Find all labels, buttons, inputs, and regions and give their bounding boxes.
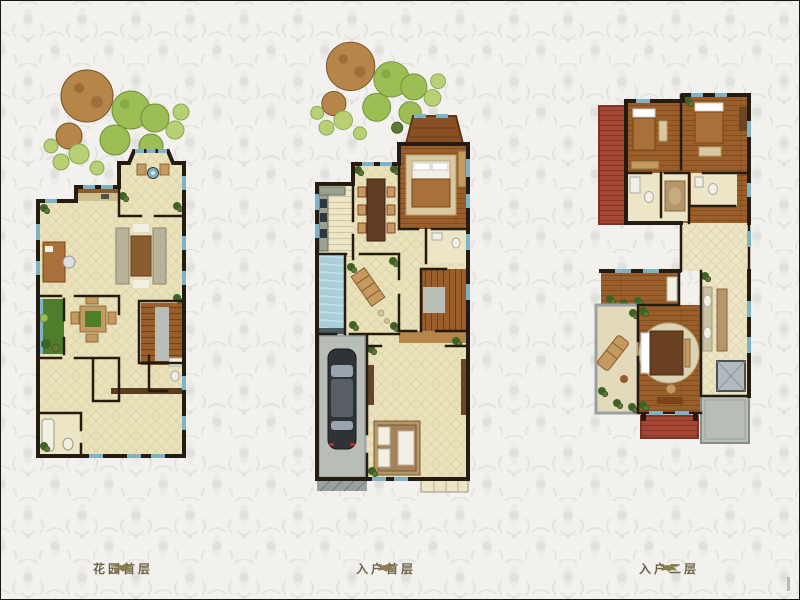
kitchen-counter [77, 189, 119, 201]
flourish-icon [377, 562, 395, 574]
patio [596, 305, 639, 413]
master-bathroom [701, 271, 749, 396]
corner-mark [787, 577, 790, 591]
car [328, 349, 356, 449]
caption-entry-second: 入户二层 [559, 558, 779, 578]
terrace-pad [701, 396, 749, 443]
master-bedroom [638, 305, 701, 413]
caption-garden-ground: 花园首层 [13, 558, 233, 578]
caption-entry-ground: 入户首层 [276, 558, 496, 578]
bathroom [426, 229, 468, 263]
floor-plan-entry-ground [306, 29, 476, 495]
stairs [421, 269, 468, 331]
flourish-icon [660, 562, 678, 574]
bathroom-2 [691, 173, 737, 206]
floor-plan-entry-second [591, 91, 756, 451]
upper-hall [661, 173, 689, 221]
floor-plan-garden-ground [31, 56, 191, 461]
entry-canopy [406, 116, 463, 144]
balcony [641, 413, 698, 438]
wood-deck [601, 271, 679, 309]
kitchen [317, 184, 353, 259]
pool [317, 254, 345, 334]
garage [317, 334, 367, 491]
flourish-icon [114, 562, 132, 574]
page: 花园首层 入户首层 入户二层 [0, 0, 800, 600]
roof-terrace [599, 106, 628, 224]
wardrobe [111, 388, 184, 394]
stairs [141, 303, 183, 365]
bedroom [399, 144, 468, 229]
bathroom-1 [628, 173, 661, 221]
